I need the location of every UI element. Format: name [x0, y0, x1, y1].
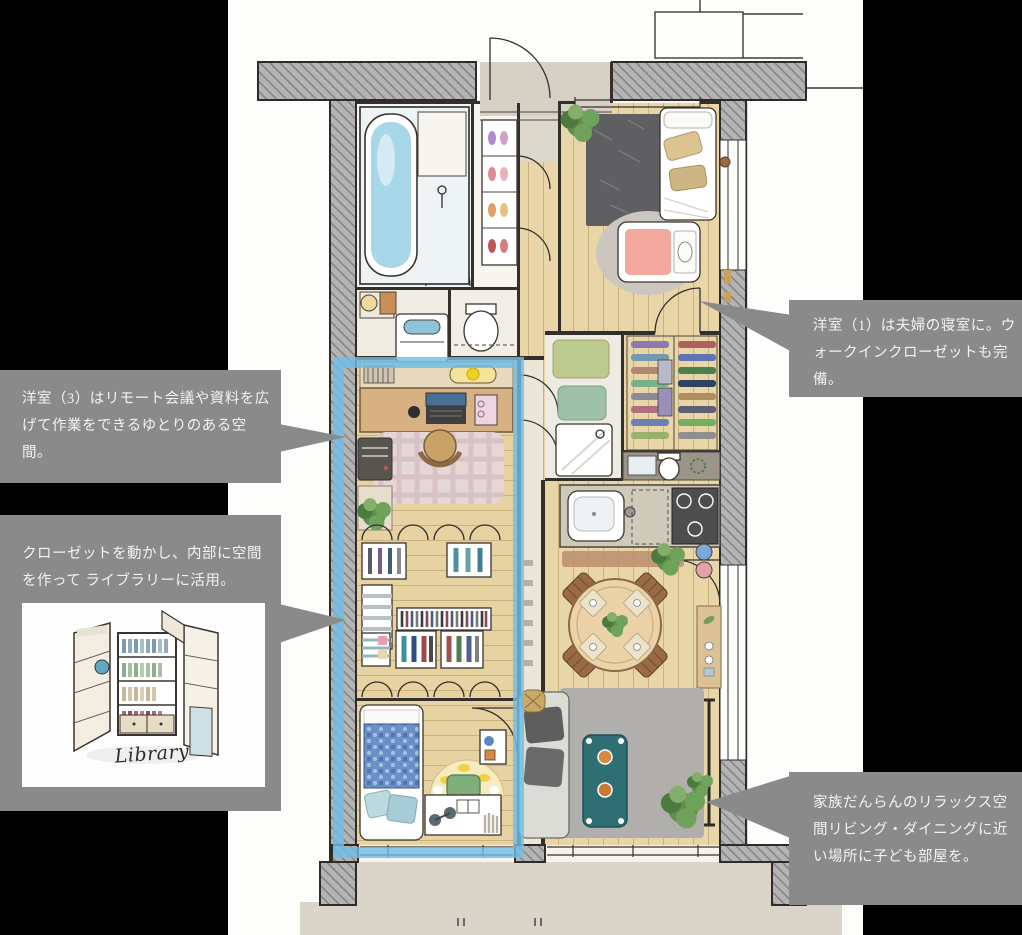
room-highlight — [333, 357, 524, 858]
callout-pointer-living — [706, 774, 790, 840]
callout-library: クローゼットを動かし、内部に空間を作って ライブラリーに活用。 — [0, 515, 281, 811]
room-powder — [553, 340, 612, 476]
library-image: Library — [22, 603, 265, 787]
room-bathroom — [360, 107, 469, 284]
callout-living-text: 家族だんらんのリラックス空間リビング・ダイニングに近い場所に子ども部屋を。 — [813, 795, 1008, 865]
callout-pointer-library — [279, 596, 347, 644]
sanitary-counter — [623, 452, 720, 480]
balcony — [300, 862, 842, 935]
callout-office-text: 洋室（3）はリモート会議や資料を広げて作業をできるゆとりのある空間。 — [22, 391, 270, 461]
floorplan-page: 洋室（1）は夫婦の寝室に。ウォークインクローゼットも完備。 洋室（3）はリモート… — [0, 0, 1022, 935]
callout-bedroom-text: 洋室（1）は夫婦の寝室に。ウォークインクローゼットも完備。 — [813, 318, 1016, 388]
callout-pointer-office — [279, 420, 347, 456]
callout-bedroom: 洋室（1）は夫婦の寝室に。ウォークインクローゼットも完備。 — [789, 300, 1022, 397]
callout-pointer-bedroom — [699, 296, 792, 356]
callout-office: 洋室（3）はリモート会議や資料を広げて作業をできるゆとりのある空間。 — [0, 370, 281, 483]
callout-living: 家族だんらんのリラックス空間リビング・ダイニングに近い場所に子ども部屋を。 — [789, 772, 1022, 905]
callout-library-text: クローゼットを動かし、内部に空間を作って ライブラリーに活用。 — [22, 546, 262, 589]
